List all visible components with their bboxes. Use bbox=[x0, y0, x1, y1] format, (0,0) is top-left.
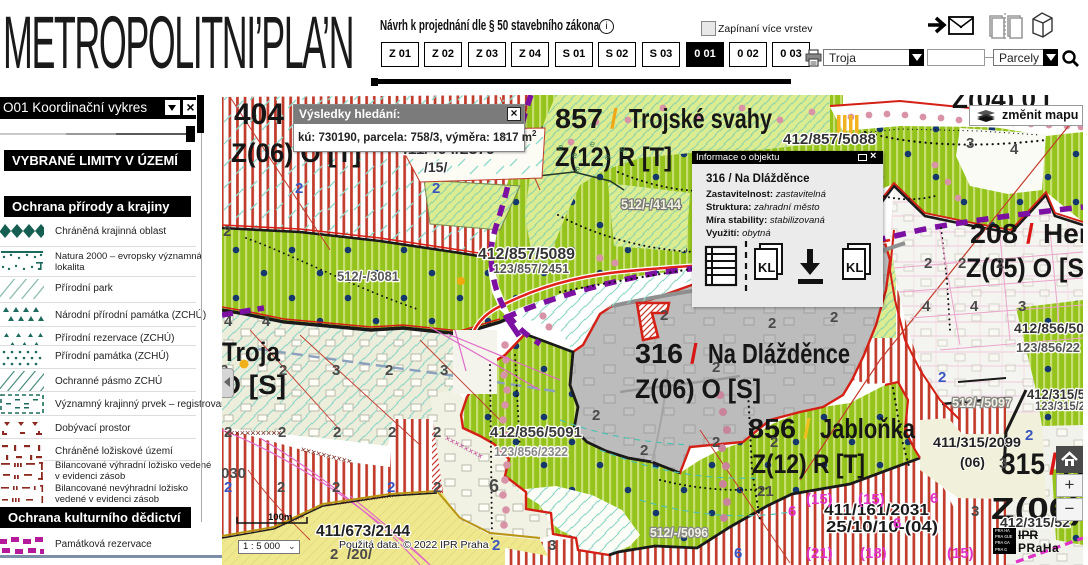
svg-text:2: 2 bbox=[330, 546, 338, 563]
svg-text:2: 2 bbox=[388, 424, 396, 441]
svg-text:100m: 100m bbox=[268, 512, 292, 523]
svg-text:4: 4 bbox=[224, 313, 233, 330]
svg-text:512/-/5097: 512/-/5097 bbox=[952, 395, 1012, 410]
svg-text:123/857/2451: 123/857/2451 bbox=[493, 261, 569, 276]
svg-text:2: 2 bbox=[279, 362, 287, 379]
svg-text:2: 2 bbox=[938, 369, 946, 386]
svg-text:3: 3 bbox=[971, 503, 979, 520]
svg-text:6: 6 bbox=[489, 476, 499, 496]
svg-text:Na Dlážděnce: Na Dlážděnce bbox=[708, 338, 850, 369]
svg-text:e: e bbox=[620, 144, 625, 154]
svg-text:/20/: /20/ bbox=[347, 546, 373, 563]
svg-text:3: 3 bbox=[999, 455, 1007, 472]
svg-text:/: / bbox=[690, 338, 698, 369]
svg-text:123/315/2: 123/315/2 bbox=[1035, 399, 1083, 413]
svg-text:e: e bbox=[605, 152, 610, 162]
svg-text:e: e bbox=[572, 150, 577, 160]
svg-text:KL: KL bbox=[758, 260, 775, 275]
svg-text:2: 2 bbox=[432, 180, 440, 197]
svg-text:3: 3 bbox=[1018, 298, 1026, 315]
svg-text:/: / bbox=[803, 413, 811, 444]
svg-text:512/-/5096: 512/-/5096 bbox=[650, 525, 708, 540]
svg-text:(06): (06) bbox=[960, 454, 985, 470]
svg-text:(21): (21) bbox=[806, 545, 833, 562]
svg-text:2: 2 bbox=[924, 255, 932, 272]
svg-text:2: 2 bbox=[433, 479, 441, 496]
svg-text:2: 2 bbox=[332, 479, 340, 496]
svg-text:411/673/2144: 411/673/2144 bbox=[316, 523, 410, 540]
svg-text:2: 2 bbox=[433, 424, 441, 441]
svg-text:2: 2 bbox=[278, 424, 286, 441]
svg-text:21: 21 bbox=[757, 483, 774, 500]
svg-text:2: 2 bbox=[830, 309, 838, 326]
svg-text:3: 3 bbox=[440, 362, 448, 379]
svg-text:6: 6 bbox=[893, 515, 901, 532]
svg-text:KL: KL bbox=[846, 260, 863, 275]
svg-text:2: 2 bbox=[640, 442, 648, 459]
svg-text:4: 4 bbox=[970, 298, 979, 315]
svg-text:857: 857 bbox=[555, 103, 603, 134]
svg-text:208: 208 bbox=[970, 218, 1018, 249]
svg-text:(15): (15) bbox=[947, 545, 974, 562]
svg-text:2: 2 bbox=[387, 479, 395, 496]
svg-text:3: 3 bbox=[332, 362, 340, 379]
svg-text:412/856/50: 412/856/50 bbox=[1014, 320, 1083, 336]
svg-text:315: 315 bbox=[1001, 448, 1045, 481]
svg-text:2: 2 bbox=[712, 359, 720, 376]
svg-text:×××××××××××: ××××××××××× bbox=[224, 428, 282, 438]
svg-text:2: 2 bbox=[996, 255, 1004, 272]
svg-text:2: 2 bbox=[223, 223, 231, 240]
svg-text:/: / bbox=[610, 103, 618, 134]
svg-text:/15/: /15/ bbox=[424, 159, 447, 175]
svg-text:Herc: Herc bbox=[1043, 218, 1083, 249]
svg-text:Trojské svahy: Trojské svahy bbox=[629, 103, 772, 134]
svg-text:123/856/2322: 123/856/2322 bbox=[494, 444, 568, 459]
svg-text:123/856/22: 123/856/22 bbox=[1016, 341, 1080, 355]
svg-text:2: 2 bbox=[958, 255, 966, 272]
svg-text:2: 2 bbox=[770, 434, 778, 451]
svg-text:2: 2 bbox=[224, 424, 232, 441]
svg-text:412/857/5088: 412/857/5088 bbox=[783, 131, 876, 148]
svg-text:e: e bbox=[575, 164, 580, 174]
svg-text:2: 2 bbox=[333, 424, 341, 441]
svg-text:6: 6 bbox=[930, 490, 938, 507]
svg-text:2: 2 bbox=[385, 362, 393, 379]
svg-text:6: 6 bbox=[788, 503, 796, 520]
svg-text:Z(06) O [S]: Z(06) O [S] bbox=[635, 374, 761, 404]
svg-text:4: 4 bbox=[1010, 141, 1019, 158]
svg-text:512/-/3081: 512/-/3081 bbox=[337, 269, 399, 284]
svg-text:(15): (15) bbox=[806, 491, 833, 508]
svg-text:3: 3 bbox=[966, 135, 974, 152]
svg-text:(15): (15) bbox=[858, 491, 885, 508]
svg-text:2: 2 bbox=[1025, 427, 1033, 444]
svg-text:2: 2 bbox=[224, 479, 232, 496]
svg-text:4: 4 bbox=[262, 313, 271, 330]
svg-text:512/-/4144: 512/-/4144 bbox=[621, 197, 681, 212]
svg-text:/: / bbox=[1026, 218, 1034, 249]
svg-text:Z(05) O [S: Z(05) O [S bbox=[966, 253, 1083, 283]
svg-text:Z(12) R [T]: Z(12) R [T] bbox=[752, 449, 865, 479]
svg-text:411/315/2099: 411/315/2099 bbox=[933, 434, 1021, 450]
svg-text:Troja: Troja bbox=[222, 337, 281, 367]
svg-text:2: 2 bbox=[277, 479, 285, 496]
svg-text:2: 2 bbox=[660, 307, 668, 324]
svg-text:404: 404 bbox=[234, 98, 284, 131]
svg-text:3: 3 bbox=[548, 537, 556, 554]
svg-text:e: e bbox=[558, 142, 563, 152]
svg-text:2: 2 bbox=[768, 315, 776, 332]
svg-text:2: 2 bbox=[712, 434, 720, 451]
svg-text:Jabloňka: Jabloňka bbox=[820, 413, 915, 444]
svg-text:316: 316 bbox=[635, 338, 683, 369]
svg-text:4: 4 bbox=[922, 298, 931, 315]
svg-text:25/10/10-(04): 25/10/10-(04) bbox=[826, 519, 938, 536]
svg-text:e: e bbox=[590, 139, 595, 149]
svg-text:2: 2 bbox=[492, 537, 500, 554]
svg-text:(18): (18) bbox=[860, 545, 887, 562]
svg-text:412/856/5091: 412/856/5091 bbox=[490, 424, 582, 441]
svg-text:6: 6 bbox=[734, 545, 742, 562]
svg-text:2: 2 bbox=[592, 407, 600, 424]
svg-text:2: 2 bbox=[295, 180, 303, 197]
